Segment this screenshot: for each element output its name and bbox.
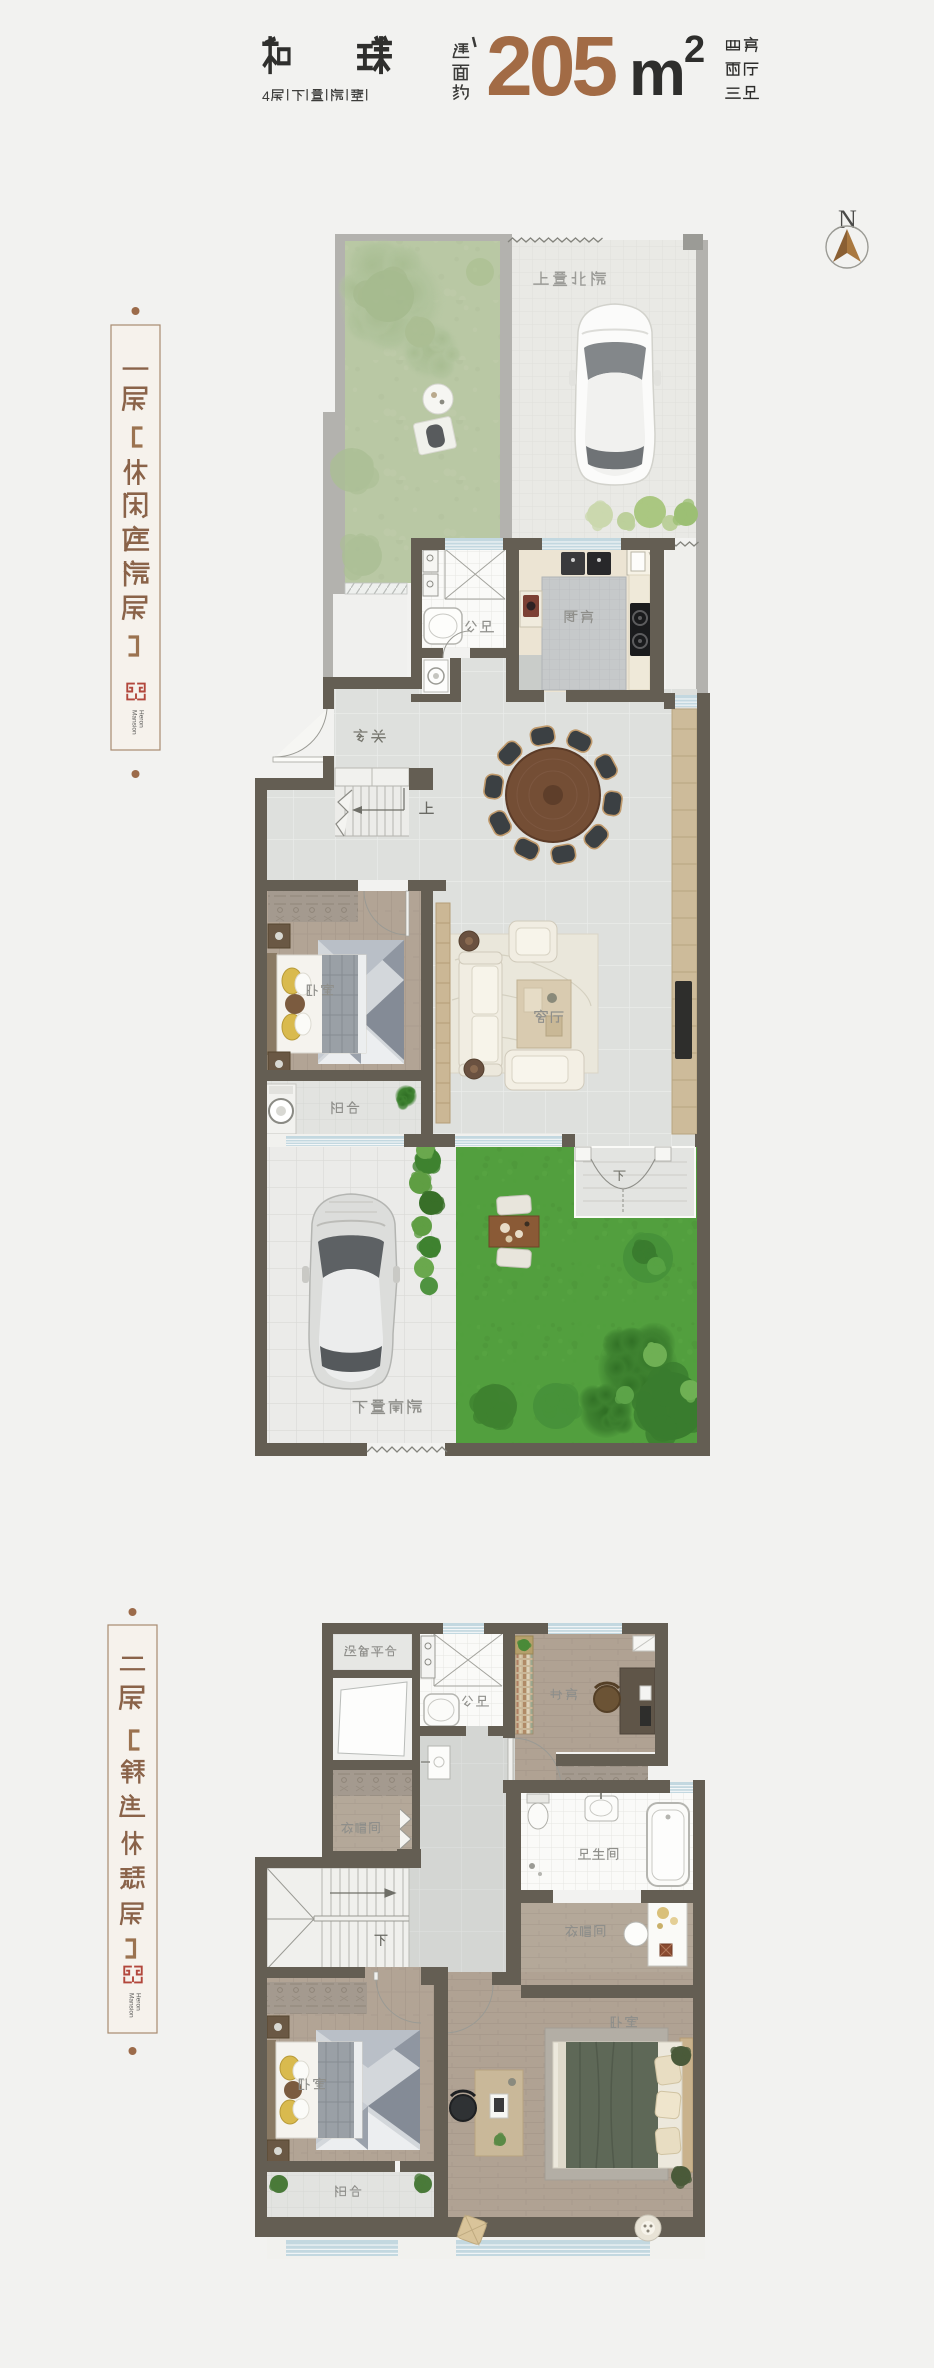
svg-text:N: N [838,205,857,234]
svg-text:205: 205 [486,19,616,113]
svg-text:Mansion: Mansion [131,710,138,735]
svg-text:Mansion: Mansion [128,1993,135,2018]
svg-text:Heron: Heron [138,710,145,728]
svg-text:2: 2 [684,29,705,71]
svg-text:m: m [629,37,686,109]
svg-text:4: 4 [262,88,270,104]
svg-text:Heron: Heron [135,1993,142,2011]
